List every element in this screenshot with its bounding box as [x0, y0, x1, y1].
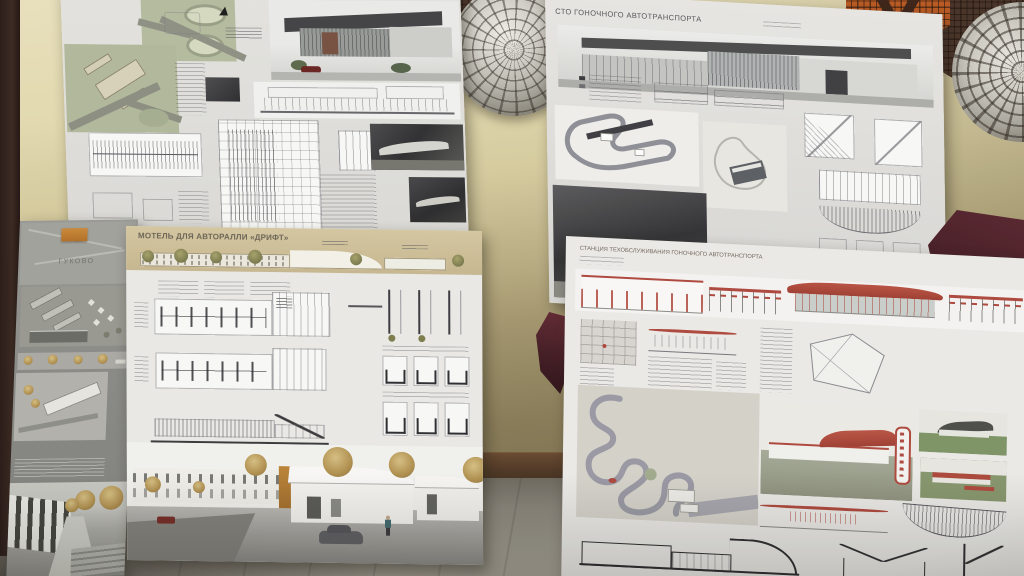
- track-drawing: [555, 105, 700, 187]
- angular-plan: [804, 113, 855, 160]
- cabin-dot: [97, 307, 104, 314]
- angular-plan: [874, 119, 923, 168]
- photo-scene: ▲: [0, 0, 1024, 576]
- detail-box: [92, 192, 133, 218]
- sign-pylon: [894, 426, 911, 485]
- walls: [843, 558, 925, 576]
- tree-olive: [350, 253, 362, 265]
- low-building: [384, 258, 446, 271]
- white-building-bar: [43, 382, 102, 416]
- elevation-baseline: [260, 111, 454, 115]
- header-band: МОТЕЛЬ ДЛЯ АВТОРАЛЛИ «ДРИФТ»: [126, 226, 482, 275]
- arc-colonnade: [819, 206, 921, 237]
- opening: [307, 497, 321, 519]
- access-road: [18, 413, 98, 433]
- plan-extension-2: [272, 348, 326, 391]
- section-pair: [448, 291, 461, 335]
- dim-mark: [348, 305, 382, 307]
- tree-olive: [452, 255, 464, 267]
- unit-walls: [448, 419, 468, 435]
- vehicle-dot: [115, 360, 125, 364]
- canopy-posts: [949, 298, 1023, 325]
- spec-column: [648, 356, 712, 389]
- floor-plan-strip-1: [154, 298, 272, 336]
- unit-walls: [447, 371, 467, 385]
- orange-tag: [61, 228, 87, 241]
- big-red-roof: [819, 430, 898, 448]
- white-roof-swoosh: [415, 194, 460, 207]
- header-note: [322, 241, 348, 245]
- tree: [245, 454, 267, 476]
- ground-strip: [371, 160, 464, 171]
- car-sketch: [164, 12, 201, 34]
- unit-labels: [382, 346, 468, 354]
- red-roof-line: [760, 504, 888, 513]
- legend-lines: [589, 75, 641, 104]
- tree-olive: [210, 251, 222, 263]
- curved-roof-building: [290, 250, 382, 269]
- opening: [331, 499, 341, 517]
- white-roof-swoosh: [378, 139, 449, 156]
- render-station-red: [760, 402, 913, 501]
- elevation-ticks: [264, 98, 450, 112]
- site-plan-gray: [19, 285, 131, 347]
- tree-dot: [103, 332, 109, 338]
- red-section-drawing: [648, 324, 736, 355]
- section-strip: [714, 90, 784, 110]
- text-lines: [178, 191, 209, 223]
- render-building-main: [269, 0, 462, 82]
- elevation-drawing: [151, 410, 329, 444]
- header-note: [402, 245, 428, 249]
- elevation-right: [275, 424, 325, 439]
- section-drawing-small: [963, 544, 1003, 576]
- canopy-row: [949, 295, 1023, 327]
- tree: [99, 486, 124, 510]
- elevation-band-red: [575, 269, 1024, 333]
- map-panel: ГУКОВО: [20, 221, 136, 285]
- unit-labels: [383, 392, 469, 400]
- unit-plan: [444, 356, 469, 386]
- site-plan-green-main: [64, 44, 179, 133]
- unit-plan: [383, 402, 408, 436]
- spec-column: [716, 361, 746, 390]
- building-footprint: [83, 53, 112, 76]
- unit-sections: [384, 290, 470, 343]
- racetrack-svg: [576, 385, 760, 526]
- title-side-note: [763, 21, 801, 28]
- building-wing: [389, 27, 452, 58]
- side-marks: [134, 302, 148, 328]
- render-small-2: [920, 458, 1006, 502]
- board-station: СТАНЦИЯ ТЕХОБСЛУЖИВАНИЯ ГОНОЧНОГО АВТОТР…: [561, 236, 1024, 576]
- tree-dot: [116, 328, 122, 334]
- detail-box: [143, 199, 174, 221]
- tree: [47, 354, 57, 364]
- elevation-band: [253, 82, 460, 120]
- annotation-paragraph: [14, 458, 105, 479]
- entry-slot: [825, 70, 847, 95]
- tree-olive: [248, 250, 262, 264]
- board-title: СТО ГОНОЧНОГО АВТОТРАНСПОРТА: [555, 7, 702, 24]
- tree: [23, 356, 32, 365]
- render-thumb-aerial: [370, 124, 465, 171]
- left-hall: [581, 541, 671, 569]
- room-modules: [160, 306, 266, 327]
- accent-wall: [322, 32, 339, 54]
- unit-walls: [386, 418, 406, 434]
- render-thumb-aerial-2: [409, 177, 467, 223]
- bush: [391, 63, 411, 73]
- board-dark-left: ГУКОВО: [6, 219, 138, 576]
- cabin-dot: [93, 319, 100, 326]
- tree: [323, 447, 353, 477]
- unit-walls: [385, 370, 405, 384]
- glass-center: [707, 51, 799, 90]
- unit-plan: [413, 356, 438, 386]
- legend-column: [204, 281, 244, 298]
- facade-doors: [581, 275, 703, 315]
- legend-column: [158, 280, 198, 297]
- unit-plan-row-2: [383, 402, 471, 437]
- opening: [427, 494, 437, 514]
- tree: [23, 385, 33, 395]
- sign-letters: [899, 433, 904, 477]
- tree: [31, 399, 40, 408]
- car-sedan: [319, 531, 363, 545]
- board-top-left: ▲: [60, 0, 469, 256]
- title-sublines: [580, 256, 624, 266]
- red-hatch: [790, 511, 860, 524]
- floor-plan-large: [218, 119, 323, 232]
- curved-roof-hall: [787, 281, 943, 325]
- elevation-profile: [268, 87, 378, 99]
- section-drawing-gable: [839, 544, 927, 576]
- tree: [65, 498, 80, 512]
- legend-block: [579, 74, 643, 104]
- site-plan-racetrack: [576, 385, 760, 526]
- legend-chip: [579, 76, 585, 80]
- location-map: [580, 319, 637, 366]
- elevation-body: [155, 418, 275, 438]
- render-small-1: [919, 409, 1007, 455]
- spec-text-lines: [320, 174, 378, 233]
- plant-dot: [418, 335, 425, 342]
- section-drawing-long: [579, 529, 799, 576]
- hatch-zone: [804, 113, 855, 160]
- render-perspective: [127, 442, 483, 565]
- section-strip: [654, 82, 708, 105]
- steps: [70, 543, 125, 576]
- unit-plan-row-1: [382, 356, 470, 387]
- tree: [97, 354, 107, 364]
- header-elevation: [140, 248, 470, 273]
- map-city-label: ГУКОВО: [58, 258, 94, 266]
- tree: [463, 457, 483, 483]
- section-ticks: [654, 334, 730, 350]
- red-elevation-small: [760, 502, 888, 533]
- roof-curve-up: [729, 538, 797, 575]
- text-lines: [175, 63, 207, 115]
- render-aerial-complex: [14, 372, 109, 441]
- person-torso: [385, 520, 391, 528]
- red-door-frames: [581, 289, 703, 314]
- tree: [389, 452, 415, 478]
- tree: [73, 355, 82, 364]
- tree-olive: [174, 249, 188, 263]
- unit-plan: [382, 356, 407, 386]
- slope-line: [965, 544, 1003, 566]
- red-roof-row: [964, 486, 994, 491]
- canopy-posts: [709, 290, 781, 315]
- room-modules: [161, 361, 266, 382]
- person-legs: [386, 528, 390, 536]
- tree: [145, 476, 161, 492]
- unit-walls: [417, 418, 437, 434]
- floor-plan-strip-2: [155, 352, 272, 390]
- site-plan-track: [555, 105, 700, 187]
- mid-bays: [671, 552, 731, 573]
- canopy-row: [709, 287, 781, 317]
- logo-mark: ▲: [216, 3, 271, 18]
- section-pair: [418, 290, 431, 334]
- board-motel: МОТЕЛЬ ДЛЯ АВТОРАЛЛИ «ДРИФТ»: [126, 226, 483, 565]
- side-marks: [134, 356, 148, 382]
- curved-roof-building: [291, 478, 413, 524]
- cabin-dot: [107, 315, 114, 322]
- unit-walls: [416, 370, 436, 384]
- right-building: [417, 484, 479, 521]
- render-thumb-dark: [205, 77, 240, 101]
- legend-chip: [579, 84, 585, 88]
- stair-hatch: [276, 296, 292, 308]
- board-title: МОТЕЛЬ ДЛЯ АВТОРАЛЛИ «ДРИФТ»: [138, 231, 289, 242]
- person: [385, 516, 391, 536]
- tree: [193, 481, 205, 493]
- section-pair: [388, 290, 401, 334]
- long-plan: [819, 170, 921, 206]
- car-roof: [327, 525, 351, 533]
- plans-column: [802, 107, 928, 266]
- arc-colonnade-plan: [901, 503, 1006, 542]
- site-red-dot: [602, 344, 606, 348]
- elevation-profile: [386, 86, 444, 100]
- unit-plan: [414, 402, 439, 436]
- angular-plan-outline: [804, 330, 889, 398]
- angular-plan-svg: [804, 330, 889, 398]
- render-aerial-site: [702, 121, 787, 212]
- render-strip: [17, 351, 130, 370]
- spec-column: [760, 328, 793, 394]
- plan-extension-1: [272, 292, 330, 337]
- plant-dot: [388, 335, 395, 342]
- pond: [138, 109, 169, 127]
- legend-lines: [175, 63, 233, 116]
- tree-olive: [142, 250, 154, 262]
- plan-rooms: [228, 129, 279, 221]
- cabin-dot: [88, 299, 95, 306]
- floor-plan-long: [88, 132, 203, 177]
- main-building-footprint: [29, 330, 87, 343]
- car-red: [157, 516, 175, 523]
- ground-line: [271, 72, 461, 82]
- logo-text-lines: [226, 27, 262, 38]
- unit-plan: [445, 402, 470, 436]
- glass-wall: [300, 28, 391, 57]
- logo-block: ▲: [217, 3, 270, 43]
- render-walkway: [6, 482, 128, 576]
